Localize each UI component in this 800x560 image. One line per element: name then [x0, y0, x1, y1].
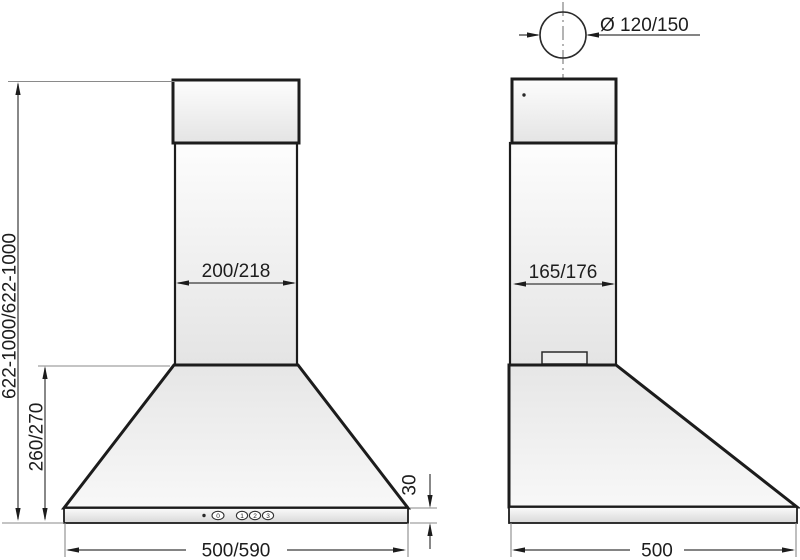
dim-total-height-label: 622-1000/622-1000 — [0, 233, 21, 399]
control-button-2-label: 2 — [253, 513, 257, 520]
dim-base-height-label: 30 — [400, 474, 421, 495]
side-chimney-duct — [510, 143, 616, 365]
front-chimney-upper-section — [173, 80, 299, 143]
dim-body-depth-label: 500 — [641, 541, 673, 560]
power-indicator-dot — [202, 514, 205, 517]
dim-body-width-label: 500/590 — [202, 541, 271, 560]
side-base-panel — [509, 507, 797, 523]
front-canopy — [64, 365, 408, 508]
side-view: Ø 120/150 165/176 500 — [509, 2, 797, 560]
dim-duct-diameter-label: Ø 120/150 — [600, 15, 689, 36]
front-view: 0 1 2 3 622-1000/622-1000 260/270 — [0, 80, 437, 560]
dim-chimney-width-label: 200/218 — [202, 261, 271, 282]
control-button-3-label: 3 — [266, 513, 270, 520]
dim-body-depth: 500 — [511, 523, 796, 560]
side-chimney-upper-section — [512, 79, 616, 143]
dim-canopy-height-label: 260/270 — [27, 403, 48, 472]
front-chimney-duct — [175, 143, 297, 365]
cooker-hood-drawing: 0 1 2 3 622-1000/622-1000 260/270 — [0, 0, 800, 560]
control-button-0-label: 0 — [216, 513, 220, 520]
side-canopy — [509, 365, 797, 507]
mounting-dot — [522, 93, 525, 96]
technical-drawing-page: 0 1 2 3 622-1000/622-1000 260/270 — [0, 0, 800, 560]
damper-detail — [542, 352, 587, 364]
dim-chimney-depth-label: 165/176 — [529, 262, 598, 283]
dim-body-width: 500/590 — [65, 523, 408, 560]
control-button-1-label: 1 — [240, 513, 244, 520]
